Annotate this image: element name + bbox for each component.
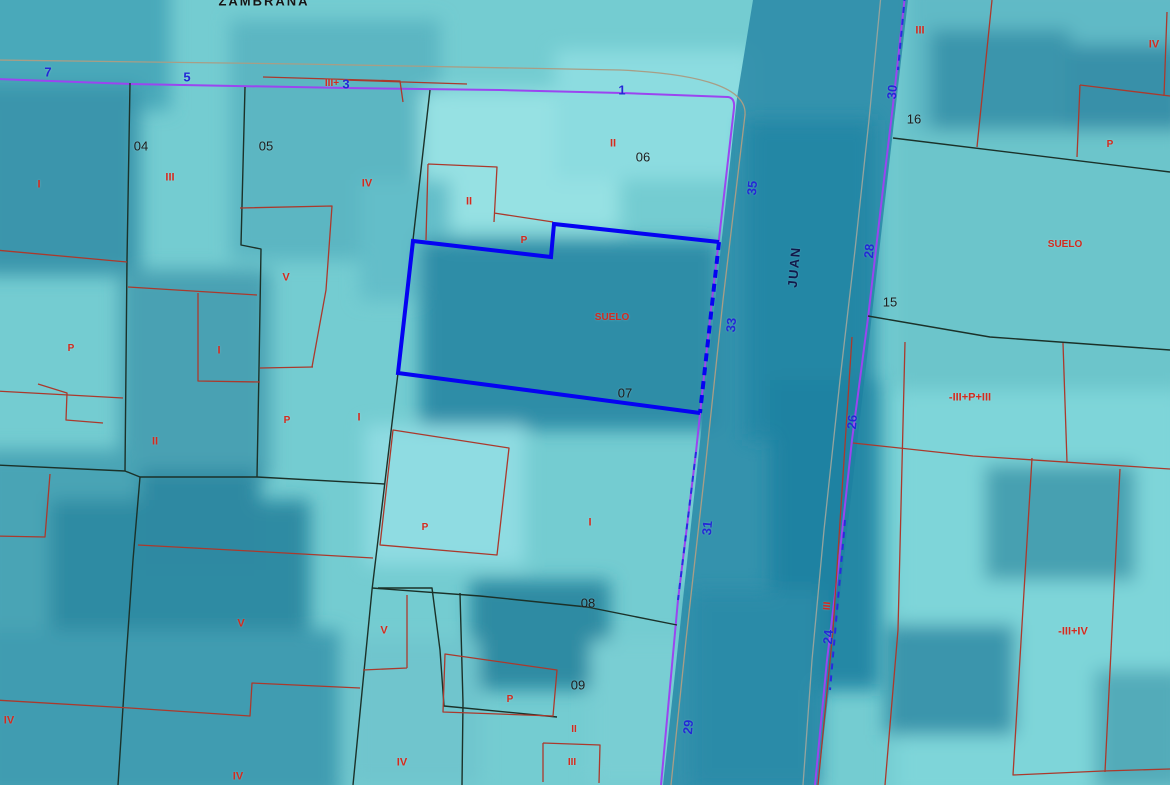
street-number-label: 29 [681,719,695,735]
construction-label: I [217,346,220,357]
street-number-label: 5 [183,71,190,84]
construction-label: II [152,437,158,448]
parcel-number-label[interactable]: 04 [134,140,148,153]
street-number-label: 28 [862,243,876,259]
construction-label: IV [362,179,372,190]
construction-label: V [237,619,244,630]
construction-label: I [357,413,360,424]
parcel-number-label[interactable]: 08 [581,597,595,610]
street-number-label: 24 [821,629,835,645]
construction-label: V [282,273,289,284]
construction-label: II [610,139,616,150]
street-number-label: 30 [885,84,899,100]
parcel-number-label[interactable]: 16 [907,113,921,126]
street-number-label: 3 [342,78,349,91]
construction-label: IV [4,716,14,727]
construction-label: P [1107,140,1114,150]
construction-label: II [466,197,472,208]
construction-label: I [37,180,40,191]
street-number-label: 7 [44,66,51,79]
construction-label: P [284,416,291,426]
construction-label: III [165,173,174,184]
street-number-label: 31 [700,520,714,536]
cadastral-map-canvas[interactable]: 040506070809151675313533312930282624JUAN… [0,0,1170,785]
parcel-number-label[interactable]: 06 [636,151,650,164]
construction-label: SUELO [1048,240,1082,250]
street-number-label: 1 [618,84,625,97]
construction-label: P [68,344,75,354]
parcel-number-label[interactable]: 09 [571,679,585,692]
construction-label: IV [233,772,243,783]
construction-label: P [507,695,514,705]
street-name-label: JUAN [786,246,803,288]
construction-label: SUELO [595,313,629,323]
construction-label: I [588,518,591,529]
construction-label: IV [397,758,407,769]
construction-label: -III+P+III [949,393,991,404]
street-name-label: ZAMBRANA [218,0,309,8]
construction-label: III [568,758,576,768]
street-number-label: 33 [724,317,738,333]
construction-label: III+ [325,79,339,89]
street-number-label: 35 [745,180,759,196]
construction-label: P [422,523,429,533]
construction-label: II [571,725,577,735]
construction-label: V [380,626,387,637]
construction-label: P [521,236,528,246]
construction-label: -III+IV [1058,627,1088,638]
construction-label: IV [1149,40,1159,51]
parcel-number-label[interactable]: 15 [883,296,897,309]
parcel-number-label[interactable]: 05 [259,140,273,153]
street-number-label: 26 [845,414,859,430]
map-labels-layer: 040506070809151675313533312930282624JUAN… [0,0,1170,785]
construction-label: III [915,26,924,37]
parcel-number-label[interactable]: 07 [618,387,632,400]
construction-label: III [823,601,834,610]
